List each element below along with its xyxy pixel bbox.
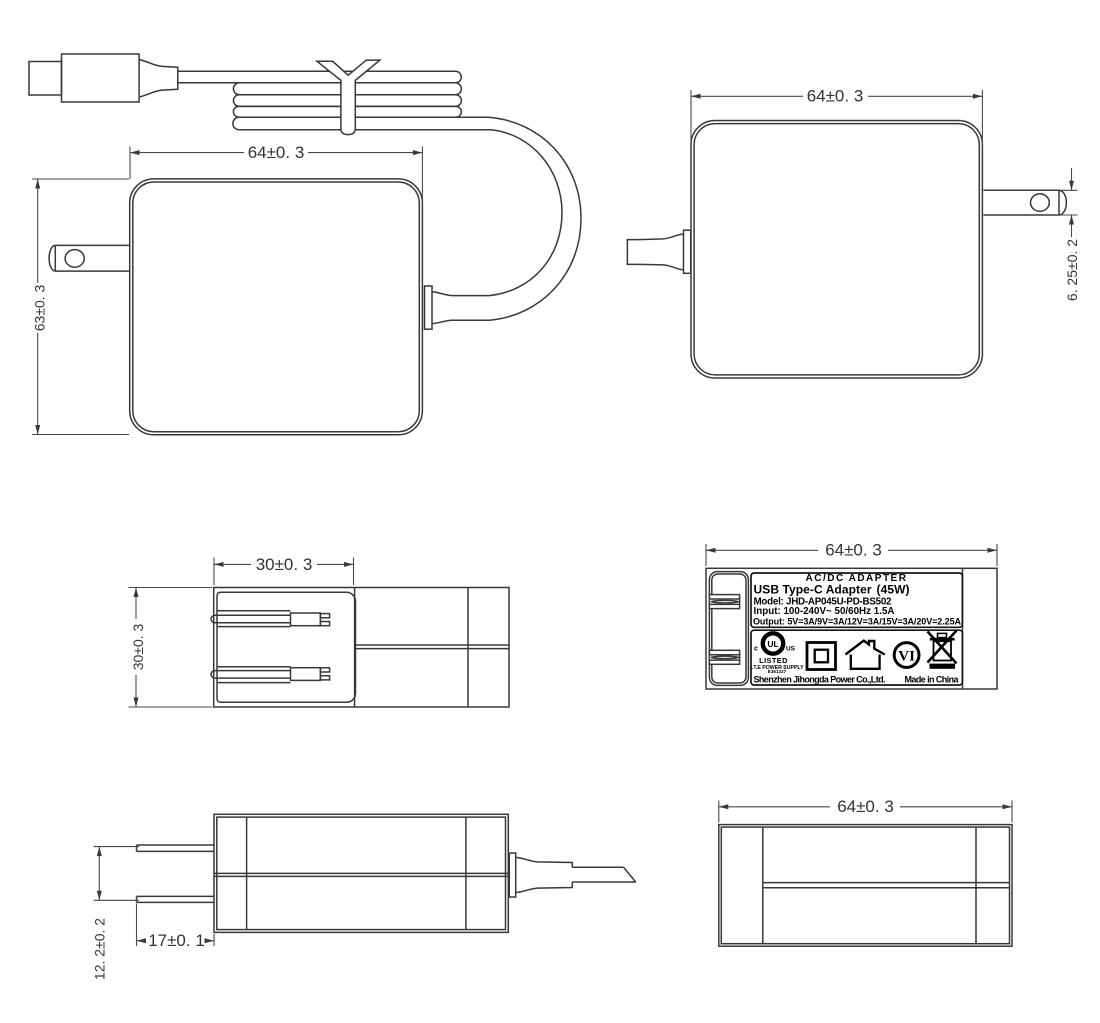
svg-text:Made in China: Made in China — [905, 675, 960, 685]
svg-text:6. 25±0. 2: 6. 25±0. 2 — [1064, 239, 1080, 301]
svg-text:LISTED: LISTED — [759, 656, 788, 665]
svg-text:64±0. 3: 64±0. 3 — [248, 143, 305, 162]
svg-text:UL: UL — [767, 639, 778, 649]
svg-text:17±0. 1: 17±0. 1 — [148, 931, 205, 950]
svg-text:64±0. 3: 64±0. 3 — [825, 541, 882, 560]
svg-text:30±0. 3: 30±0. 3 — [256, 555, 313, 574]
svg-text:VI: VI — [898, 649, 915, 665]
svg-text:US: US — [786, 646, 796, 653]
svg-text:64±0. 3: 64±0. 3 — [807, 87, 864, 106]
svg-text:64±0. 3: 64±0. 3 — [837, 797, 894, 816]
svg-text:USB Type-C Adapter (45W): USB Type-C Adapter (45W) — [754, 583, 910, 597]
svg-text:12. 2±0. 2: 12. 2±0. 2 — [92, 918, 108, 980]
svg-text:E361327: E361327 — [768, 669, 787, 674]
svg-text:Output: 5V=3A/9V=3A/12V=3A/15V: Output: 5V=3A/9V=3A/12V=3A/15V=3A/20V=2.… — [753, 616, 962, 626]
svg-text:c: c — [754, 646, 758, 653]
svg-text:Shenzhen Jihongda Power Co.,Lt: Shenzhen Jihongda Power Co.,Ltd. — [754, 675, 886, 685]
svg-text:63±0. 3: 63±0. 3 — [32, 284, 48, 331]
svg-text:30±0. 3: 30±0. 3 — [130, 623, 146, 670]
